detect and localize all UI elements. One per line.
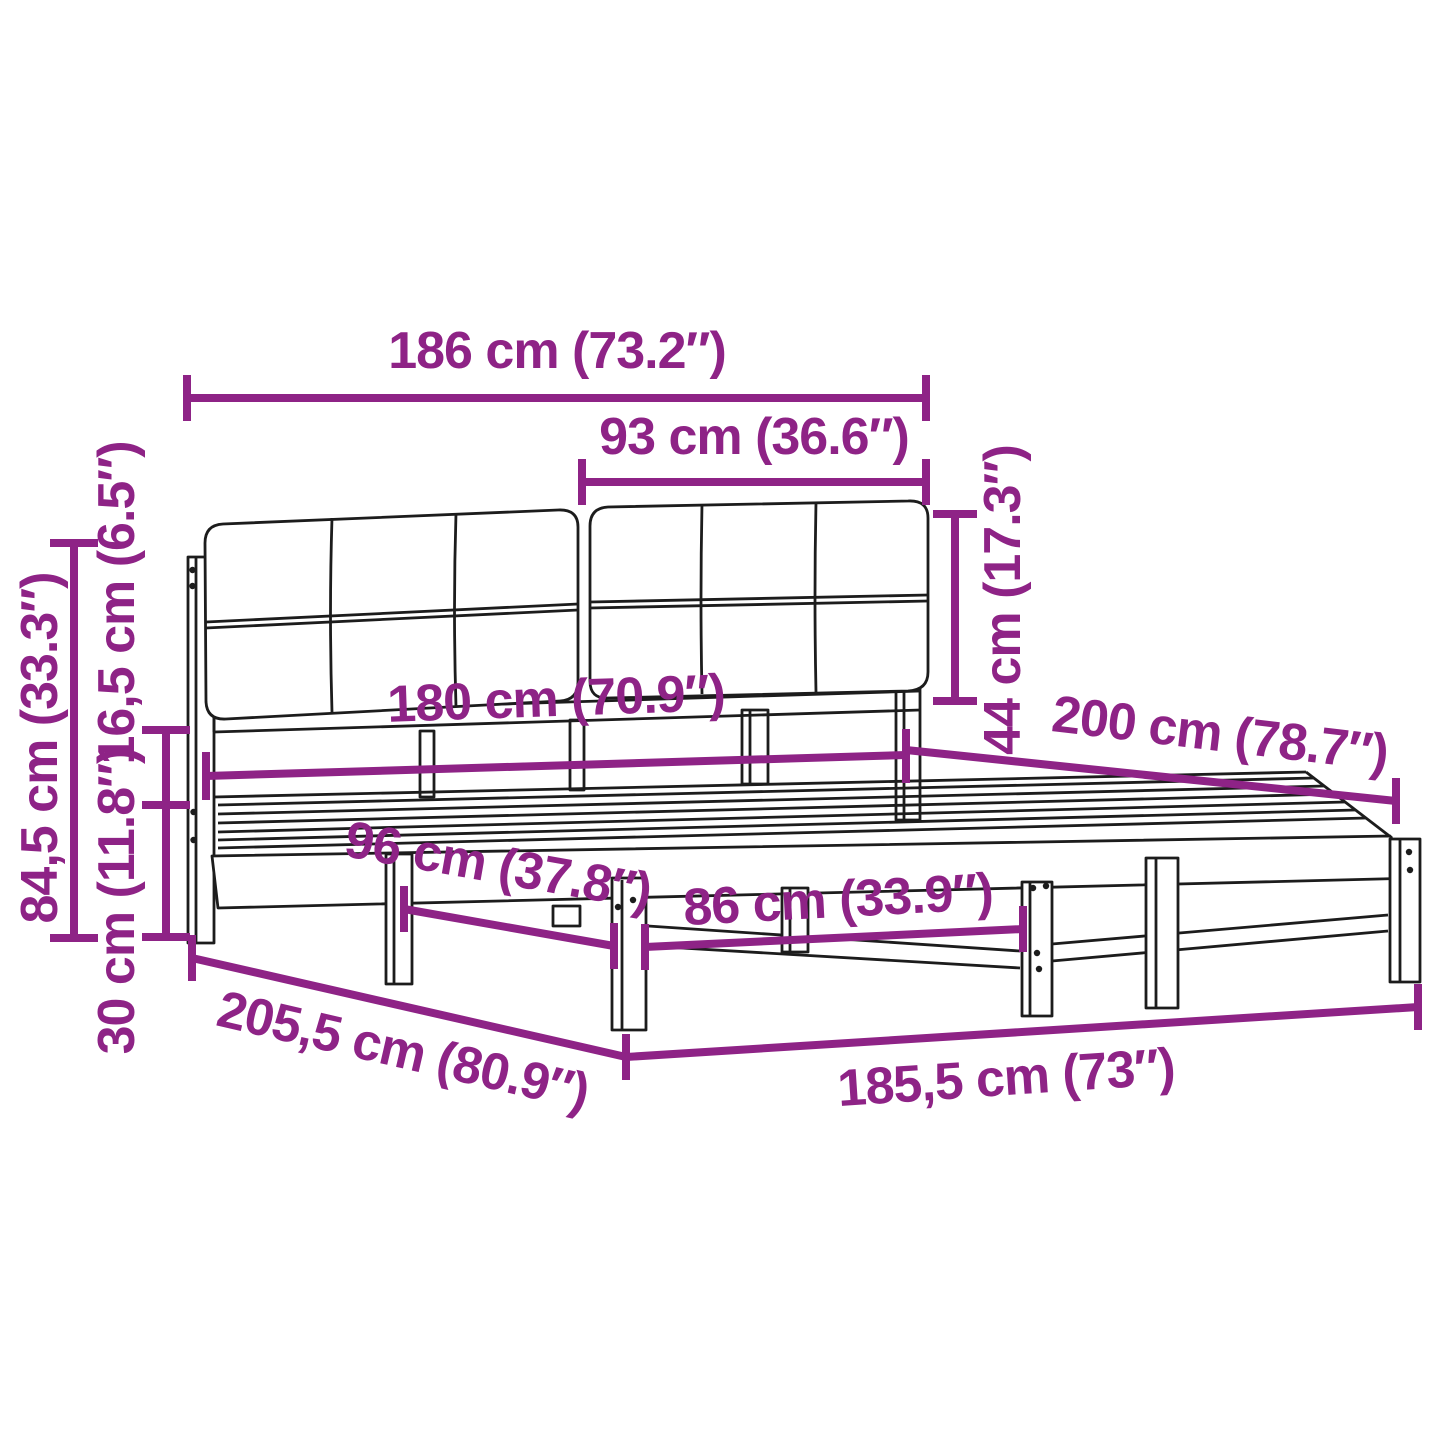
dim-label-bed-width: 180 cm (70.9″) (386, 667, 725, 731)
dim-label-headboard-half-width: 93 cm (36.6″) (599, 411, 909, 463)
dim-label-under-headboard-gap: 16,5 cm (6.5″) (91, 441, 143, 764)
leg-foot (1390, 839, 1420, 982)
dim-line-headboard-height (933, 514, 977, 701)
dimension-diagram: 186 cm (73.2″) 93 cm (36.6″) 44 cm (17.3… (0, 0, 1445, 1445)
leg-mid-right (1146, 858, 1178, 1008)
dim-label-headboard-height: 44 cm (17.3″) (977, 445, 1029, 755)
dim-line-gap-and-frame-height (142, 730, 190, 937)
dim-label-total-height: 84,5 cm (33.3″) (14, 572, 66, 923)
dim-label-total-width: 186 cm (73.2″) (388, 325, 726, 377)
dim-label-frame-height: 30 cm (11.8″) (91, 748, 143, 1055)
